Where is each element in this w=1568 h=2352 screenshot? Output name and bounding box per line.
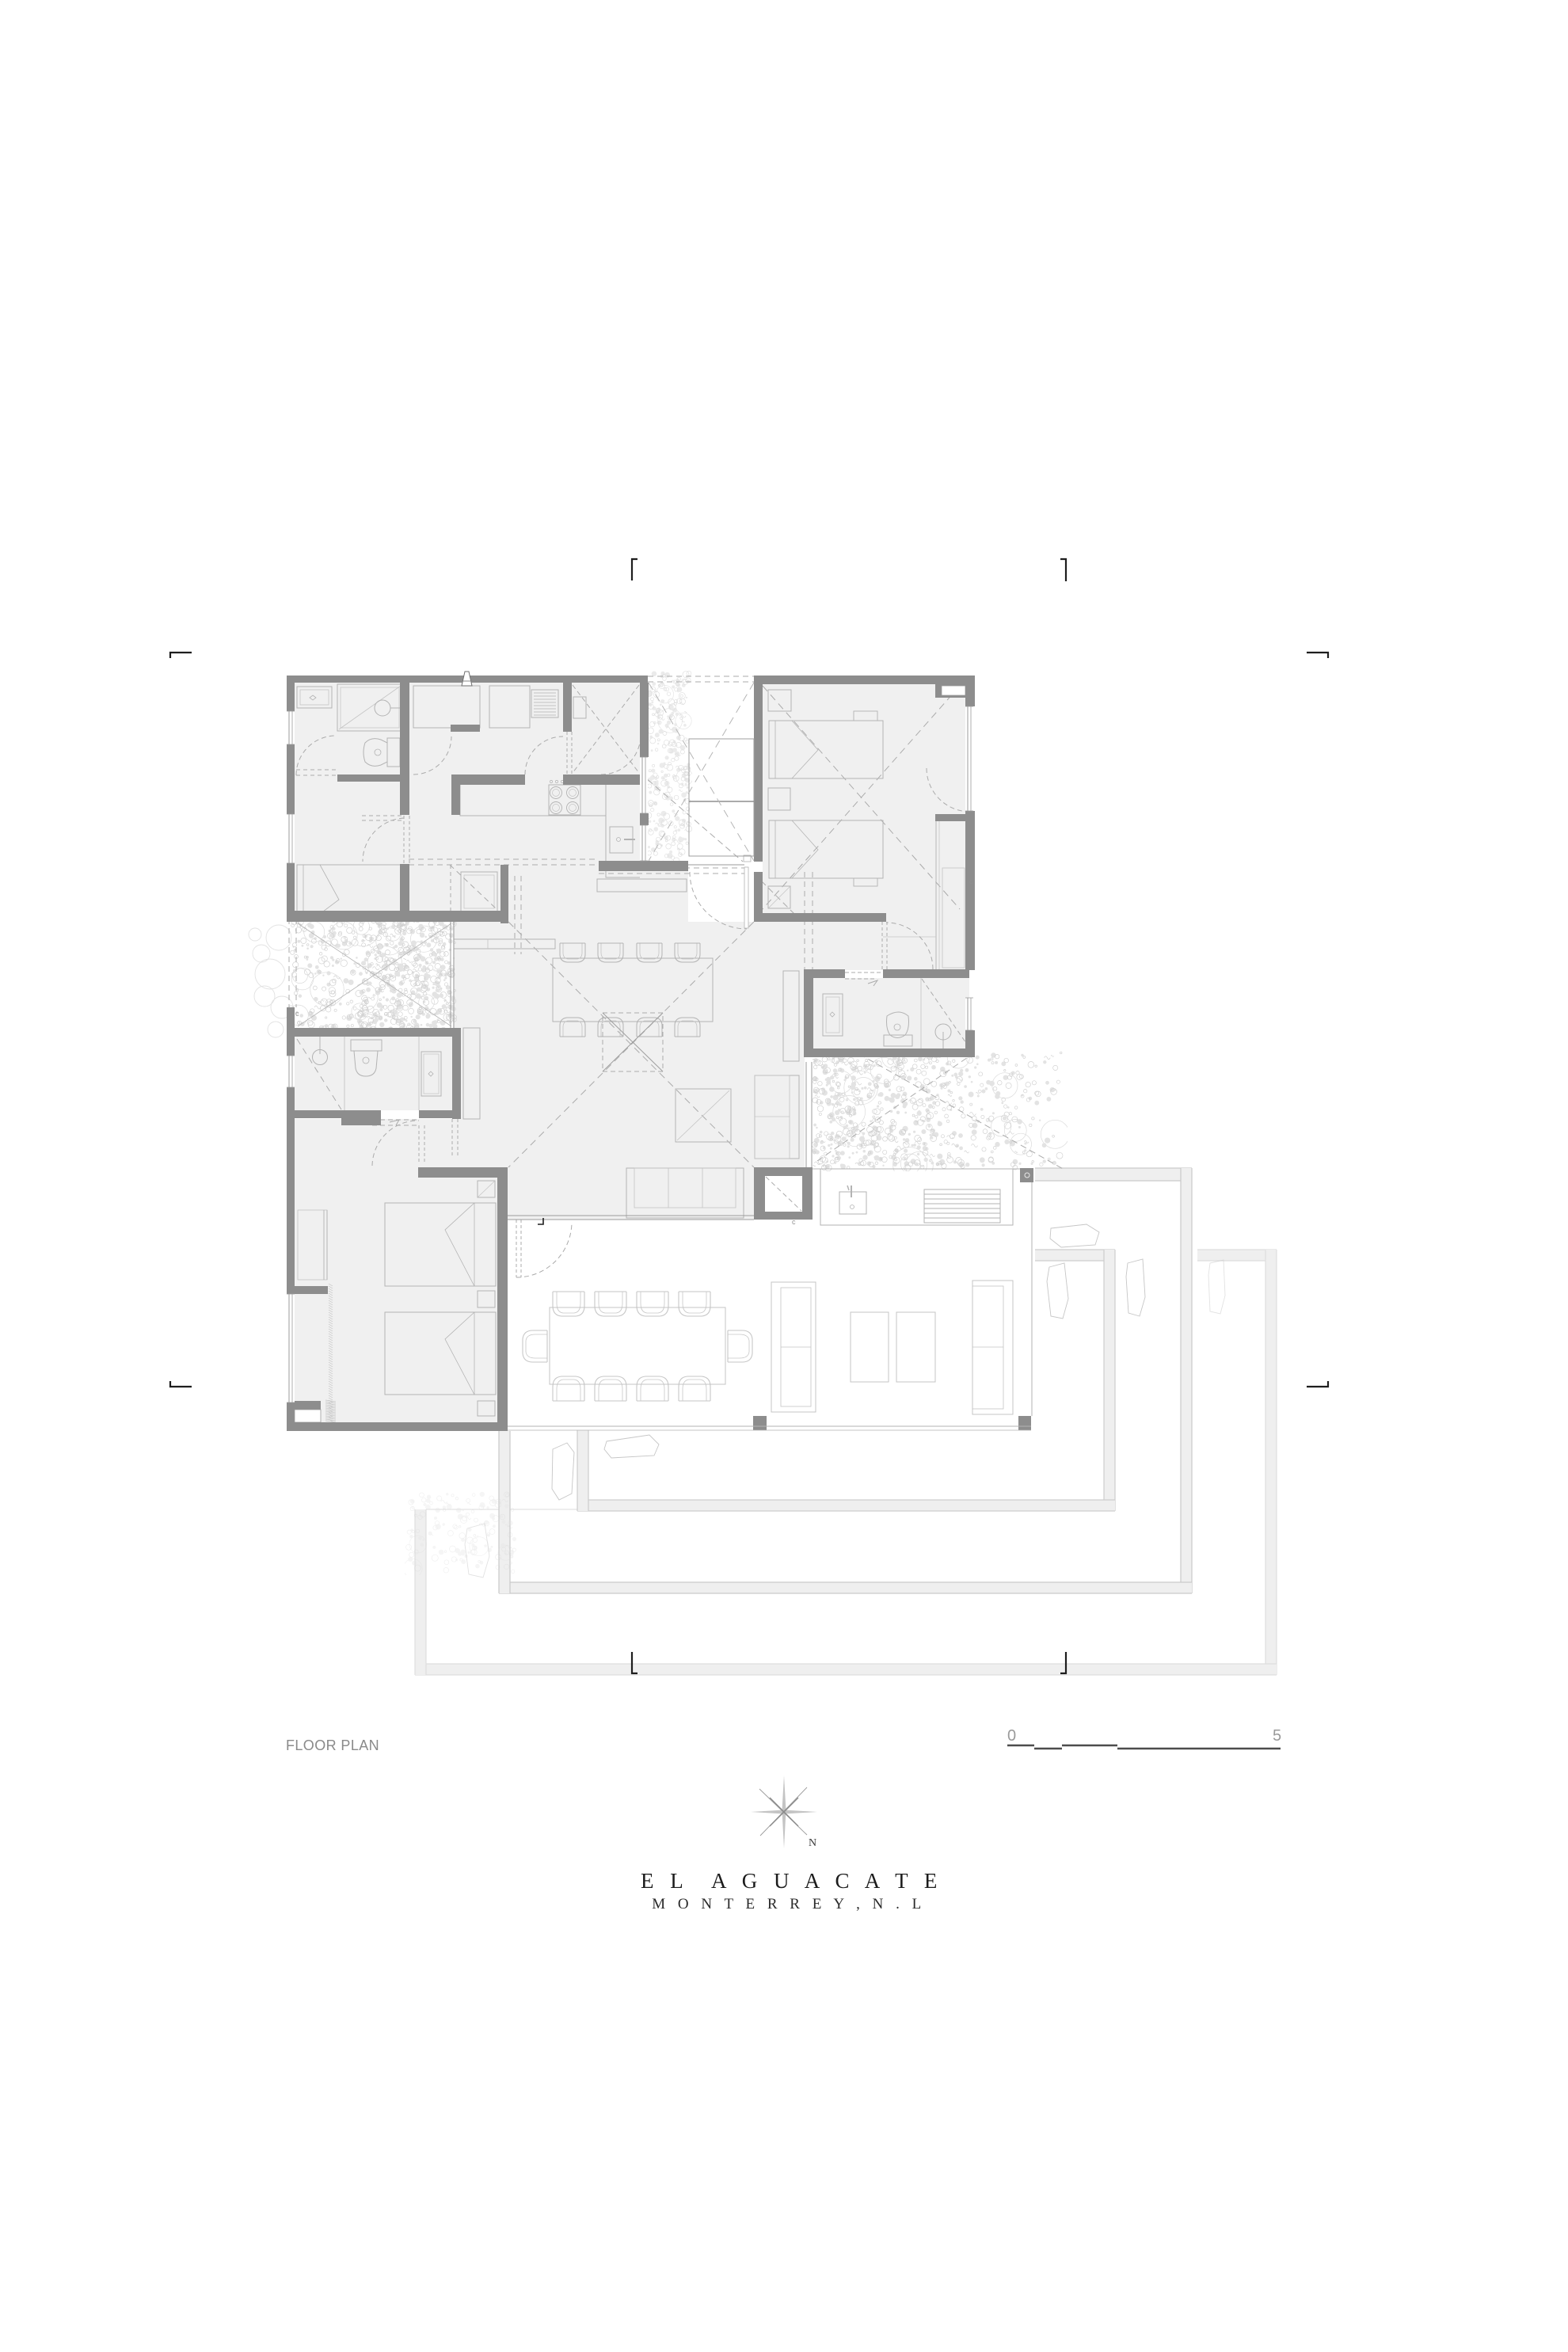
- svg-text:c: c: [969, 877, 973, 885]
- svg-text:5: 5: [1273, 1727, 1281, 1745]
- svg-text:c: c: [295, 1010, 299, 1018]
- svg-text:FLOOR PLAN: FLOOR PLAN: [286, 1737, 379, 1753]
- svg-text:c: c: [792, 1218, 796, 1226]
- svg-text:0: 0: [1007, 1727, 1016, 1745]
- svg-text:M O N T E R R E Y , N . L: M O N T E R R E Y , N . L: [652, 1896, 925, 1912]
- svg-text:E L: E L: [641, 1869, 689, 1893]
- svg-text:N: N: [809, 1837, 816, 1849]
- svg-text:A G U A C A T E: A G U A C A T E: [711, 1869, 942, 1893]
